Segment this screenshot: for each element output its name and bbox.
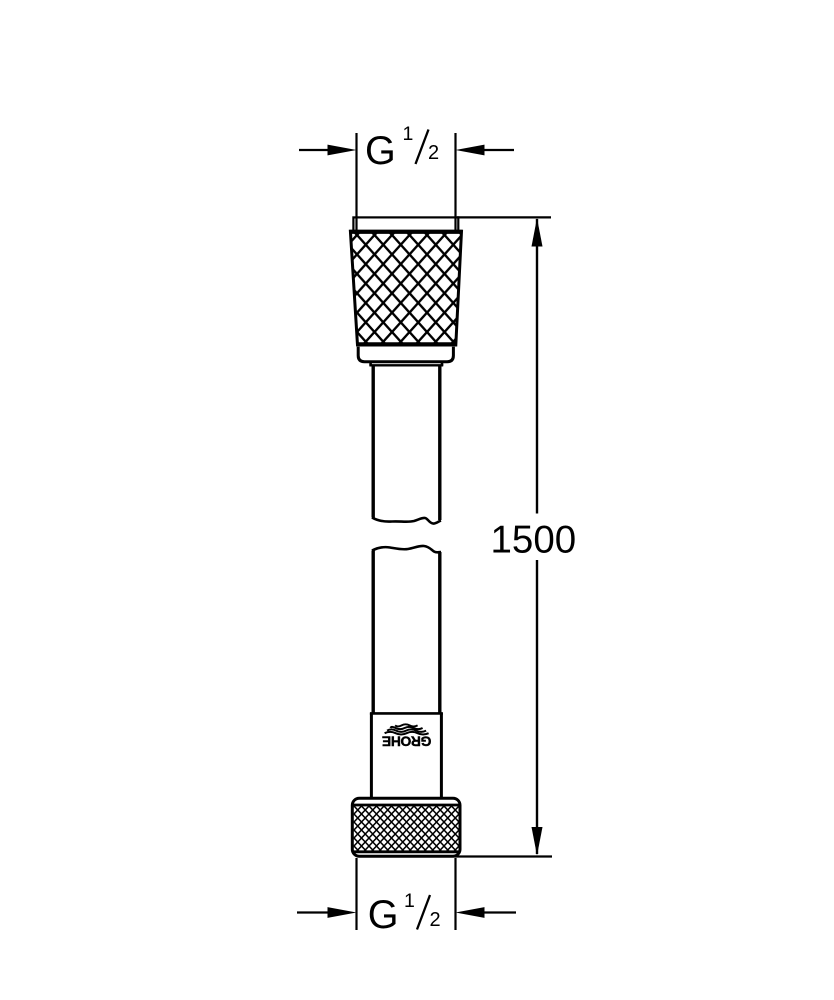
svg-text:G: G: [368, 893, 399, 937]
svg-text:1: 1: [404, 890, 415, 912]
svg-text:2: 2: [428, 142, 439, 164]
svg-text:1500: 1500: [491, 519, 577, 562]
svg-text:1: 1: [403, 123, 414, 145]
svg-text:G: G: [365, 129, 396, 173]
svg-text:GROHE: GROHE: [382, 734, 431, 749]
svg-text:2: 2: [430, 909, 441, 931]
